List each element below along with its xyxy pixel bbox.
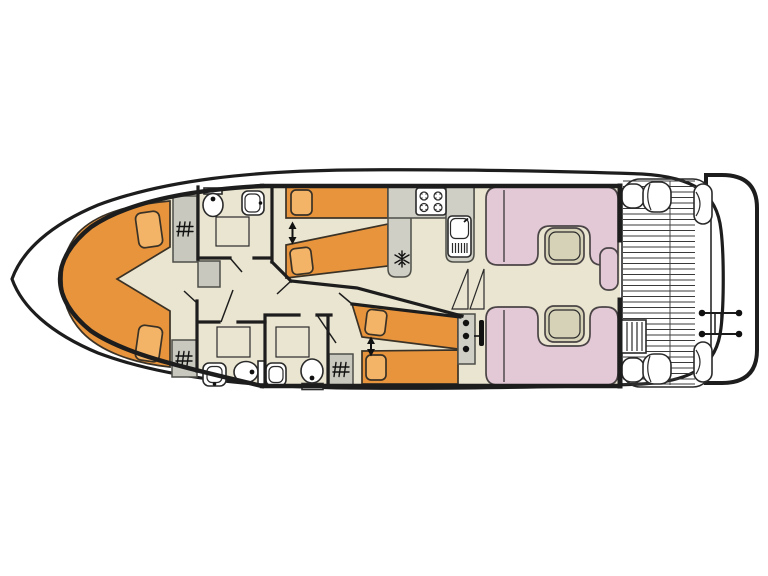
deck-corner-seat-top-right — [694, 184, 712, 224]
wardrobe-aft — [329, 354, 353, 385]
table-top — [545, 228, 584, 264]
helm-wheel — [479, 320, 484, 346]
galley-sink-icon — [448, 216, 471, 257]
wardrobe-fore-top — [173, 196, 197, 262]
floor-plan-svg — [0, 0, 768, 576]
pillow — [289, 247, 313, 275]
deck-corner-seat-top-left — [622, 182, 671, 212]
pillow — [364, 309, 387, 336]
helm-control — [463, 320, 469, 326]
table-bottom — [545, 306, 584, 342]
pillow — [135, 210, 164, 248]
deck-corner-seat-bottom-left — [622, 354, 671, 384]
sink-icon — [242, 191, 264, 215]
stove-icon — [416, 188, 446, 215]
deck-corner-seat-bottom-right — [694, 342, 712, 382]
helm-control — [463, 346, 469, 352]
cabinet — [198, 261, 220, 287]
helm-control — [463, 333, 469, 339]
deck-table — [621, 320, 646, 353]
pillow — [366, 355, 386, 380]
boat-floor-plan — [0, 0, 768, 576]
pillow — [291, 190, 312, 215]
door-side-seat — [600, 248, 618, 290]
sink-icon — [266, 363, 286, 386]
